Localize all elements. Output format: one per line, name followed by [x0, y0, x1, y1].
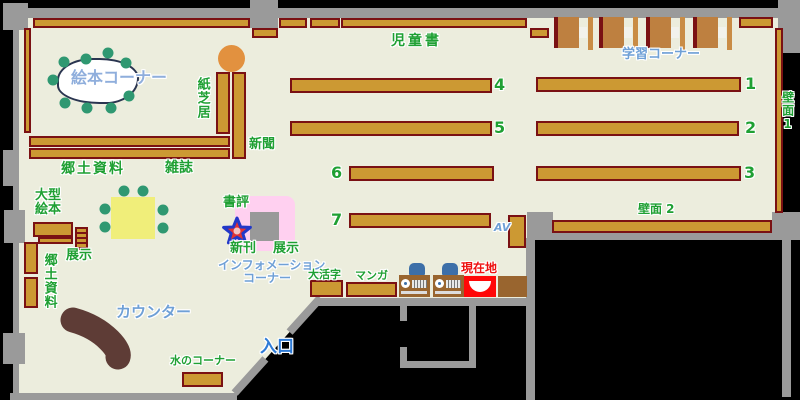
label-new-arrivals: 新刊 [230, 242, 256, 256]
shelf-number-5: 5 [494, 118, 505, 137]
stool [103, 48, 114, 59]
vestibule-right [469, 306, 476, 368]
shelf-6 [349, 166, 494, 181]
stool [100, 204, 111, 215]
library-floor-map: 絵本コーナー 紙芝居 新聞 郷土資料 雑誌 児童書 学習コーナー 壁面1 壁面 … [0, 0, 800, 400]
shelf-large-picture-books-thin [38, 237, 73, 244]
shelf-local-materials-a [24, 242, 38, 274]
label-current-location: 現在地 [461, 262, 497, 275]
wall-left-block-3 [4, 210, 25, 243]
shelf-4 [290, 78, 492, 93]
shelf-water-corner [182, 372, 223, 387]
shelf-magazines-1 [29, 136, 230, 147]
study-desk [646, 17, 685, 49]
shelf-magazines-2 [29, 148, 230, 159]
shelf-5 [290, 121, 492, 136]
reading-table [111, 197, 155, 239]
study-desk [693, 17, 732, 49]
label-av: AV [494, 222, 510, 234]
study-desk [599, 17, 638, 49]
label-water-corner: 水のコーナー [170, 355, 236, 367]
shelf-7 [349, 213, 491, 228]
wall-divider-bar [526, 238, 535, 400]
label-book-review: 書評 [223, 196, 249, 210]
shelf-kamishibai-newspaper [232, 72, 246, 159]
current-location-glyph [469, 281, 491, 292]
shelf-1 [536, 77, 741, 92]
shelf-top-a [279, 18, 307, 28]
shelf-number-6: 6 [331, 163, 342, 182]
label-display-info: 展示 [273, 242, 299, 256]
label-children-books: 児童書 [391, 34, 442, 49]
shelf-top-b [310, 18, 340, 28]
study-desk [554, 17, 593, 49]
shelf-large-picture-books [33, 222, 73, 237]
wall-left-block-2 [3, 150, 19, 186]
stool [48, 75, 59, 86]
label-picture-book-corner: 絵本コーナー [71, 70, 167, 87]
display-stand [250, 212, 279, 241]
shelf-number-1: 1 [745, 74, 756, 93]
shelf-top-right [739, 17, 773, 28]
label-study-corner: 学習コーナー [622, 48, 700, 62]
stool [158, 205, 169, 216]
stool [100, 222, 111, 233]
shelf-local-materials-b [24, 277, 38, 308]
current-location-marker [464, 276, 496, 297]
stool [124, 91, 135, 102]
shelf-kamishibai-left [216, 72, 230, 134]
label-kamishibai: 紙芝居 [195, 77, 209, 119]
display-rack [75, 227, 88, 250]
shelf-large-print [310, 280, 343, 297]
stool [60, 98, 71, 109]
wall-wing-right-block [772, 212, 800, 240]
kamishibai-stool [218, 45, 245, 72]
stool [59, 57, 70, 68]
terminal-chair [442, 263, 458, 275]
terminal-chair [409, 263, 425, 275]
shelf-2 [536, 121, 739, 136]
shelf-number-2: 2 [745, 118, 756, 137]
stool [106, 103, 117, 114]
label-local-materials-top: 郷土資料 [61, 162, 125, 177]
label-large-picture-books: 大型絵本 [35, 189, 65, 216]
stool [138, 186, 149, 197]
wall-top-left-block [3, 3, 28, 30]
wall-machines-bottom [316, 298, 535, 306]
wall-left-block-4 [3, 333, 25, 364]
shelf-number-3: 3 [744, 163, 755, 182]
wall-bottom-left [10, 393, 237, 400]
label-entrance: 入口 [260, 339, 294, 357]
stool [158, 223, 169, 234]
label-magazines: 雑誌 [165, 161, 193, 176]
stool [121, 58, 132, 69]
shelf-manga [346, 282, 397, 297]
shelf-left-wall [24, 28, 31, 133]
wall-wing-bottom [535, 233, 800, 240]
shelf-top-c [341, 18, 527, 28]
shelf-3 [536, 166, 741, 181]
stool [82, 103, 93, 114]
wall-right-bar [782, 240, 791, 397]
shelf-number-7: 7 [331, 210, 342, 229]
shelf-under-pillar [252, 28, 278, 38]
label-large-print: 大活字 [308, 269, 341, 281]
label-counter: カウンター [116, 305, 191, 321]
label-information-line2: コーナー [243, 272, 291, 285]
return-shelf [498, 276, 527, 297]
shelf-top-long [33, 18, 250, 28]
shelf-number-4: 4 [494, 75, 505, 94]
shelf-wall-face-2 [552, 220, 772, 233]
label-wall-face-2: 壁面 2 [638, 203, 675, 216]
shelf-wing-small [530, 28, 549, 38]
label-display-left: 展示 [66, 249, 92, 263]
wall-top-pillar [250, 0, 278, 28]
label-wall-face-1: 壁面1 [781, 91, 794, 132]
label-newspaper: 新聞 [249, 138, 275, 152]
stool [81, 54, 92, 65]
search-terminal [433, 275, 464, 297]
vestibule-bottom [400, 361, 476, 368]
vestibule-left-stub [400, 306, 407, 321]
label-manga: マンガ [355, 270, 388, 282]
stool [119, 186, 130, 197]
label-local-materials-left: 郷土資料 [42, 253, 56, 309]
search-terminal [399, 275, 430, 297]
shelf-av [508, 215, 526, 248]
